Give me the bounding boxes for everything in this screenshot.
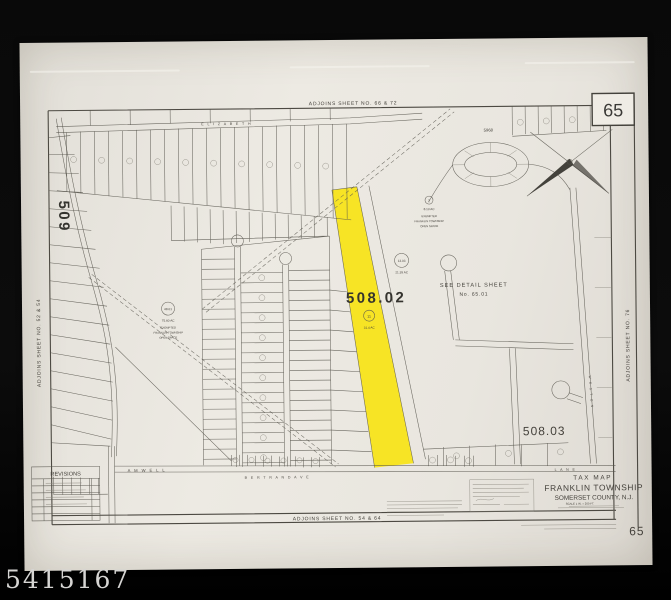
north-arrow-icon: [526, 129, 613, 196]
svg-text:8.13 AC: 8.13 AC: [424, 207, 436, 211]
block-label-509: 509: [55, 201, 72, 233]
revisions-title: REVISIONS: [50, 471, 81, 477]
svg-text:2: 2: [428, 199, 430, 203]
svg-text:FRANKLIN TOWNSHIP: FRANKLIN TOWNSHIP: [153, 330, 183, 334]
map-photo: 65 ADJOINS SHEET NO. 66 & 72 ADJOINS SHE…: [19, 37, 652, 571]
svg-text:11: 11: [367, 315, 371, 319]
title-tax-map: TAX MAP: [573, 474, 612, 481]
parcel-lines-left-block: [48, 116, 232, 524]
parcel-lines-top-band: [56, 107, 423, 246]
tax-map-svg: 65 ADJOINS SHEET NO. 66 & 72 ADJOINS SHE…: [19, 37, 652, 571]
lot-marker-48-01: 48.01 75.60 AC EXEMPTED FRANKLIN TOWNSHI…: [153, 302, 183, 340]
photo-frame: 65 ADJOINS SHEET NO. 66 & 72 ADJOINS SHE…: [0, 0, 671, 600]
detail-sheet-note-line1: SEE DETAIL SHEET: [440, 282, 508, 289]
svg-text:75.60 AC: 75.60 AC: [162, 319, 176, 323]
road-label-bertrand: B E R T R A N D A V E: [245, 475, 310, 480]
road-label-lane: L A N E: [555, 468, 577, 472]
detail-sheet-note-line2: No. 65.01: [459, 292, 488, 298]
lot-marker-2: 2 8.13 AC EXEMPTED FRANKLIN TOWNSHIP OPE…: [414, 196, 444, 228]
block-label-508-03: 508.03: [523, 424, 566, 438]
title-scale: SCALE 1 IN. = 200 FT.: [566, 502, 595, 506]
title-township: FRANKLIN TOWNSHIP: [544, 482, 643, 493]
svg-text:31.4 AC: 31.4 AC: [364, 326, 376, 330]
svg-text:13.03: 13.03: [398, 259, 406, 263]
certification-stamp: [470, 479, 534, 512]
block-label-508-02: 508.02: [346, 289, 406, 307]
road-lines-detail-area: [421, 187, 614, 467]
svg-text:OPEN SPACE: OPEN SPACE: [420, 224, 438, 228]
road-label-elizabeth: E L I Z A B E T H: [201, 122, 252, 126]
svg-text:OPEN SPACE: OPEN SPACE: [159, 336, 177, 340]
road-label-amwell: A M W E L L: [128, 468, 167, 473]
title-block: TAX MAP FRANKLIN TOWNSHIP SOMERSET COUNT…: [544, 474, 644, 539]
adjoins-bottom-label: ADJOINS SHEET NO. 54 & 64: [293, 516, 382, 523]
svg-text:EXEMPTED: EXEMPTED: [421, 214, 436, 218]
svg-text:FRANKLIN TOWNSHIP: FRANKLIN TOWNSHIP: [414, 219, 444, 223]
svg-text:EXEMPTED: EXEMPTED: [161, 326, 176, 330]
road-label-weston: W E S T O N: [588, 375, 595, 408]
adjoins-right-label: ADJOINS SHEET NO. 76: [625, 309, 632, 382]
adjoins-top-label: ADJOINS SHEET NO. 66 & 72: [309, 100, 398, 107]
lot-marker-13-03: 13.03 21.39 AC: [395, 253, 409, 274]
svg-text:48.01: 48.01: [164, 307, 172, 311]
road-lines-bottom: [114, 451, 615, 476]
footer-sheet-number: 65: [629, 524, 644, 538]
photo-watermark: 5415167: [5, 565, 130, 594]
adjoins-left-label: ADJOINS SHEET NO. 52 & 54: [36, 299, 43, 388]
tract-label-5968: 5968: [484, 127, 494, 132]
sheet-number: 65: [603, 100, 623, 120]
svg-text:21.39 AC: 21.39 AC: [395, 270, 409, 274]
parcel-lines-top-right-cluster: [428, 105, 607, 201]
sheet-number-box: 65: [592, 93, 634, 125]
